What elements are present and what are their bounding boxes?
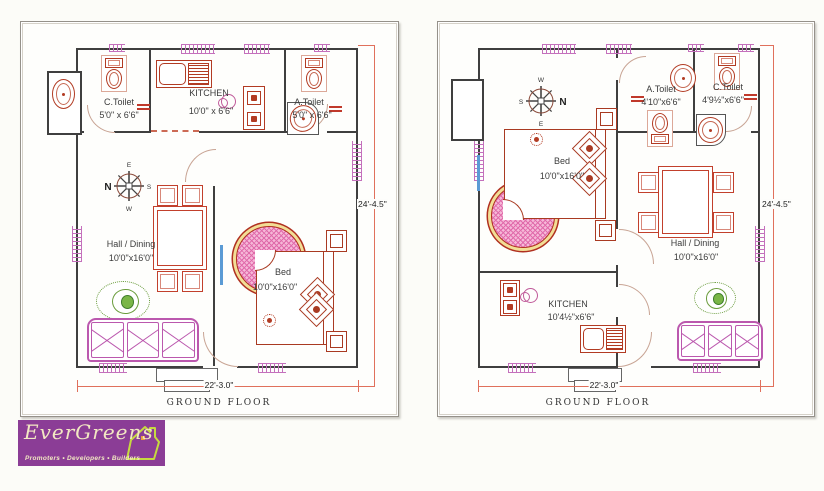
- dining-table-icon: [153, 206, 207, 270]
- wall-segment: [616, 131, 618, 229]
- room-size-label: 5'0" x 6'6": [99, 110, 138, 120]
- dimension-line: [374, 45, 375, 386]
- side-table-icon: [326, 331, 347, 352]
- exhaust-vent: [329, 106, 342, 108]
- window: [99, 363, 127, 373]
- room-label: A.Toilet: [294, 97, 324, 107]
- room-label: C.Toilet: [713, 82, 743, 92]
- chair-icon: [182, 271, 203, 292]
- chair-icon: [157, 185, 178, 206]
- dimension-tick: [358, 380, 359, 392]
- sofa-icon: [87, 318, 199, 362]
- room-label: Bed: [554, 156, 570, 166]
- round-rug-icon: [694, 282, 736, 314]
- height-dimension: 24'-4.5": [761, 199, 792, 209]
- room-size-label: 10'0" x 6'6": [189, 106, 233, 116]
- window: [542, 44, 576, 54]
- room-size-label: 10'0"x16'0": [674, 252, 718, 262]
- ventilator-window: [314, 44, 330, 52]
- chair-figure-icon: [523, 288, 538, 303]
- compass-rose: W N E S: [513, 73, 569, 129]
- ventilator-window: [688, 44, 704, 52]
- width-dimension: 22'-3.0": [204, 380, 235, 390]
- kitchen-opening-dashed: [151, 130, 199, 132]
- window: [244, 44, 270, 54]
- wall-segment: [114, 131, 151, 133]
- dimension-line: [773, 45, 774, 386]
- chair-icon: [713, 212, 734, 233]
- exhaust-vent: [137, 104, 150, 106]
- wall-segment: [284, 48, 286, 133]
- wash-basin-icon: [698, 117, 723, 143]
- chair-icon: [713, 172, 734, 193]
- compass-top: W: [538, 77, 545, 84]
- wall-segment: [478, 271, 618, 273]
- wash-basin-icon: [52, 79, 75, 109]
- kitchen-sink-icon: [156, 60, 212, 88]
- window: [693, 363, 721, 373]
- dimension-line: [358, 45, 375, 46]
- window: [755, 226, 765, 262]
- brand-name: EverGreens: [24, 420, 154, 444]
- stove-icon: [500, 280, 520, 316]
- chair-icon: [638, 212, 659, 233]
- chair-icon: [638, 172, 659, 193]
- door-arc: [619, 229, 654, 264]
- door-arc: [619, 284, 650, 315]
- room-label: A.Toilet: [646, 84, 676, 94]
- door-arc: [203, 332, 238, 367]
- chair-icon: [182, 185, 203, 206]
- ventilator-window: [109, 44, 125, 52]
- window: [606, 44, 632, 54]
- ventilator-window: [738, 44, 754, 52]
- window: [72, 226, 82, 262]
- window: [258, 363, 286, 373]
- dimension-tick: [478, 380, 479, 392]
- floor-plan-page: { "left_plan": { "rooms": { "c_toilet": …: [0, 0, 824, 491]
- compass-rose: E S W N: [101, 158, 157, 214]
- door-arc: [185, 149, 216, 182]
- toilet-icon: [647, 110, 673, 147]
- side-table-icon: [326, 230, 347, 252]
- kitchen-sink-icon: [580, 325, 626, 353]
- plan-caption: GROUND FLOOR: [167, 398, 272, 408]
- stove-icon: [243, 86, 265, 130]
- wall-segment: [758, 48, 760, 368]
- side-table-icon: [595, 220, 616, 241]
- door-arc: [619, 56, 646, 83]
- wall-segment: [149, 48, 151, 133]
- dimension-tick: [77, 380, 78, 392]
- right-plan-sheet: W N E S Bed 10'0"x16'0" A.Toilet 4'10"x6…: [437, 21, 815, 417]
- window: [508, 363, 536, 373]
- room-size-label: 10'0"x16'0": [540, 171, 584, 181]
- dimension-line: [478, 386, 774, 387]
- plan-caption: GROUND FLOOR: [546, 398, 651, 408]
- wall-segment: [751, 131, 760, 133]
- compass-left: S: [519, 99, 524, 106]
- compass-right: S: [147, 184, 152, 191]
- compass-bottom: E: [539, 121, 544, 128]
- room-size-label: 4'9½"x6'6": [702, 95, 744, 105]
- dimension-line: [760, 45, 774, 46]
- room-label: Bed: [275, 267, 291, 277]
- chair-icon: [157, 271, 178, 292]
- round-rug-icon: [96, 281, 150, 321]
- room-label: C.Toilet: [104, 97, 134, 107]
- side-table-icon: [596, 108, 617, 130]
- room-label: KITCHEN: [189, 88, 229, 98]
- wall-segment: [237, 366, 358, 368]
- room-size-label: 4'10"x6'6": [641, 97, 680, 107]
- compass-bottom: W: [126, 206, 133, 213]
- width-dimension: 22'-3.0": [589, 380, 620, 390]
- room-size-label: 5'0" x 6'6": [292, 110, 331, 120]
- toilet-icon: [101, 55, 127, 92]
- evergreens-logo: EverGreens Promoters • Developers • Buil…: [18, 420, 165, 466]
- wall-segment: [327, 131, 356, 133]
- window: [352, 141, 362, 181]
- left-plan-sheet: C.Toilet 5'0" x 6'6" KITCHEN 10'0" x 6'6…: [20, 21, 399, 417]
- height-dimension: 24'-4.5": [357, 199, 388, 209]
- sliding-door-mark: [220, 245, 223, 285]
- exhaust-vent: [744, 94, 757, 96]
- dining-table-icon: [658, 166, 713, 238]
- room-size-label: 10'0"x16'0": [253, 282, 297, 292]
- compass-top: E: [127, 162, 132, 169]
- dimension-tick: [760, 380, 761, 392]
- compass-right: N: [559, 97, 566, 108]
- window: [181, 44, 215, 54]
- compass-left: N: [104, 182, 111, 193]
- room-size-label: 10'4½"x6'6": [548, 312, 595, 322]
- flower-icon: [530, 133, 543, 146]
- room-size-label: 10'0"x16'0": [109, 253, 153, 263]
- sliding-door-mark: [477, 155, 480, 191]
- wash-alcove: [451, 79, 484, 141]
- room-label: KITCHEN: [548, 299, 588, 309]
- room-label: Hall / Dining: [107, 239, 156, 249]
- door-arc: [726, 106, 752, 132]
- wall-segment: [693, 48, 695, 133]
- sofa-icon: [677, 321, 763, 361]
- toilet-icon: [301, 55, 327, 92]
- room-label: Hall / Dining: [671, 238, 720, 248]
- flower-icon: [263, 314, 276, 327]
- brand-tagline: Promoters • Developers • Builders: [25, 455, 140, 462]
- wall-segment: [616, 273, 618, 287]
